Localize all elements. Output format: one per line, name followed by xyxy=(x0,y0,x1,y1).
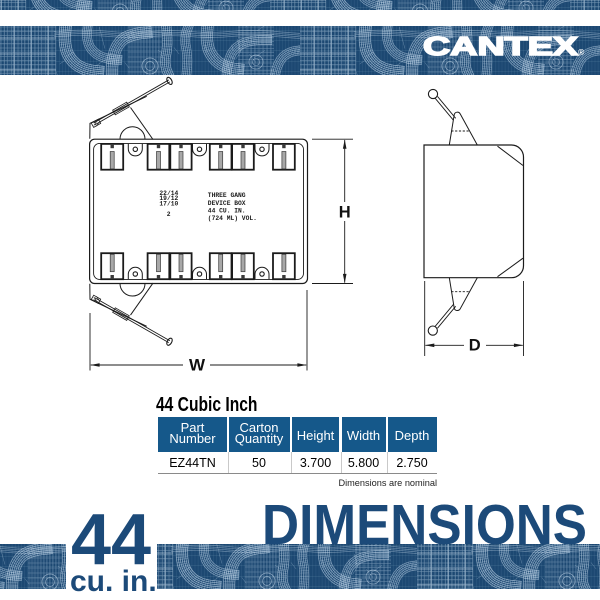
svg-text:44 CU. IN.: 44 CU. IN. xyxy=(208,208,246,215)
svg-text:2: 2 xyxy=(167,211,171,218)
svg-text:W: W xyxy=(189,356,206,375)
svg-text:(724 ML) VOL.: (724 ML) VOL. xyxy=(208,215,257,222)
svg-text:DEVICE BOX: DEVICE BOX xyxy=(208,200,246,207)
svg-text:D: D xyxy=(469,337,481,355)
svg-text:H: H xyxy=(339,204,351,222)
svg-text:17/10: 17/10 xyxy=(159,200,178,207)
svg-text:THREE GANG: THREE GANG xyxy=(208,192,246,199)
